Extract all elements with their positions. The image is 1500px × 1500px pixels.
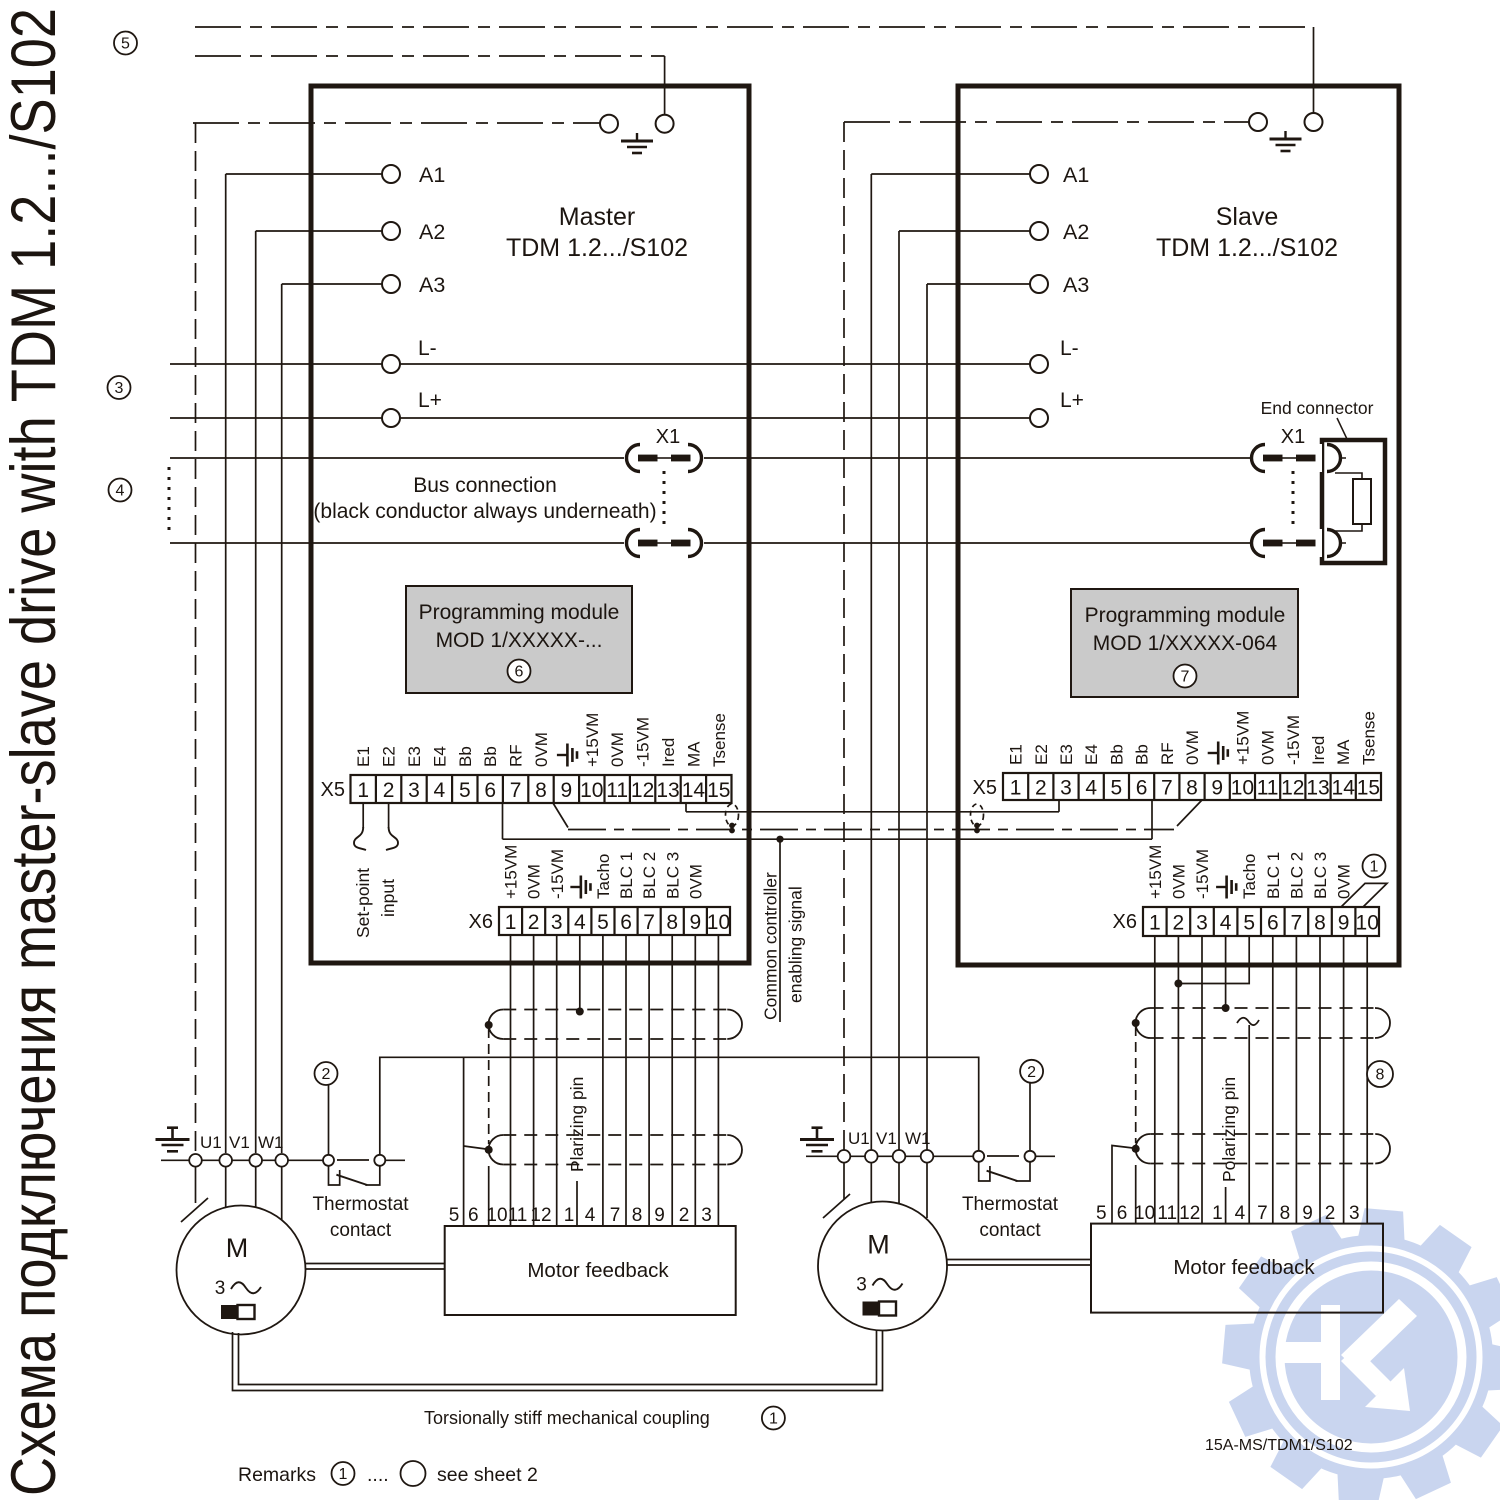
svg-text:A1: A1: [1063, 163, 1089, 187]
svg-text:4: 4: [1235, 1203, 1246, 1224]
svg-text:1: 1: [1149, 912, 1161, 935]
svg-text:8: 8: [535, 779, 547, 802]
svg-text:0VM: 0VM: [608, 732, 627, 767]
svg-text:BLC 1: BLC 1: [617, 852, 636, 899]
svg-text:Plarizing pin: Plarizing pin: [567, 1077, 587, 1172]
svg-text:0VM: 0VM: [532, 732, 551, 767]
svg-text:E2: E2: [380, 746, 399, 767]
svg-text:4: 4: [116, 483, 125, 500]
svg-text:E2: E2: [1032, 744, 1051, 765]
svg-text:M: M: [226, 1233, 249, 1263]
svg-text:3: 3: [115, 380, 124, 397]
svg-text:0VM: 0VM: [525, 864, 544, 899]
svg-text:Motor feedback: Motor feedback: [527, 1259, 669, 1282]
svg-text:A3: A3: [419, 273, 445, 297]
svg-text:14: 14: [682, 779, 706, 802]
svg-text:2: 2: [1325, 1203, 1336, 1224]
svg-text:X6: X6: [469, 911, 493, 933]
svg-text:U1: U1: [200, 1133, 222, 1152]
svg-text:TDM 1.2.../S102: TDM 1.2.../S102: [1156, 234, 1338, 262]
svg-text:Bb: Bb: [1107, 744, 1126, 765]
svg-text:1: 1: [357, 779, 369, 802]
svg-text:11: 11: [1257, 777, 1279, 800]
svg-text:+15VM: +15VM: [583, 713, 602, 767]
svg-text:-15VM: -15VM: [634, 717, 653, 767]
svg-text:V1: V1: [876, 1129, 897, 1148]
svg-text:3: 3: [1349, 1203, 1360, 1224]
svg-text:5: 5: [121, 36, 130, 53]
svg-text:BLC 2: BLC 2: [1287, 852, 1306, 899]
svg-text:13: 13: [1306, 777, 1329, 800]
svg-text:5: 5: [459, 779, 471, 802]
svg-text:-15VM: -15VM: [1193, 849, 1212, 899]
svg-text:6: 6: [515, 664, 524, 681]
svg-text:3: 3: [408, 779, 420, 802]
svg-text:X5: X5: [321, 779, 345, 801]
svg-text:4: 4: [585, 1205, 596, 1226]
svg-text:E4: E4: [1082, 744, 1101, 765]
svg-text:9: 9: [561, 779, 573, 802]
svg-text:M: M: [867, 1230, 890, 1260]
svg-text:End connector: End connector: [1261, 398, 1374, 418]
svg-text:10: 10: [1231, 777, 1254, 800]
svg-text:E4: E4: [430, 746, 449, 767]
svg-text:Tacho: Tacho: [594, 854, 613, 899]
svg-text:10: 10: [486, 1205, 507, 1226]
svg-text:U1: U1: [848, 1129, 870, 1148]
svg-text:7: 7: [1181, 669, 1190, 686]
svg-text:X5: X5: [973, 777, 997, 799]
svg-text:MOD 1/XXXXX-064: MOD 1/XXXXX-064: [1093, 632, 1278, 655]
svg-text:E1: E1: [1007, 744, 1026, 765]
svg-text:4: 4: [1220, 912, 1232, 935]
svg-text:2: 2: [1173, 912, 1185, 935]
svg-text:Programming module: Programming module: [419, 601, 620, 624]
svg-text:Bb: Bb: [1133, 744, 1152, 765]
svg-text:RF: RF: [507, 744, 526, 767]
svg-text:8: 8: [1314, 912, 1326, 935]
svg-text:8: 8: [1280, 1203, 1291, 1224]
svg-text:1: 1: [1212, 1203, 1223, 1224]
svg-text:E3: E3: [1057, 744, 1076, 765]
svg-text:L+: L+: [1060, 389, 1084, 412]
svg-text:MA: MA: [684, 741, 703, 767]
svg-text:0VM: 0VM: [1169, 864, 1188, 899]
svg-text:7: 7: [1161, 777, 1173, 800]
svg-text:5: 5: [597, 911, 609, 934]
svg-text:A2: A2: [419, 220, 445, 244]
svg-text:5: 5: [1096, 1203, 1107, 1224]
svg-text:Thermostat: Thermostat: [962, 1194, 1059, 1215]
svg-text:Common controller: Common controller: [761, 872, 781, 1020]
svg-text:BLC 3: BLC 3: [663, 852, 682, 899]
svg-text:15: 15: [707, 779, 730, 802]
svg-text:9: 9: [1302, 1203, 1313, 1224]
svg-text:Tacho: Tacho: [1240, 854, 1259, 899]
svg-text:12: 12: [1281, 777, 1304, 800]
svg-text:1: 1: [564, 1205, 575, 1226]
svg-text:....: ....: [367, 1464, 389, 1486]
svg-text:Motor feedback: Motor feedback: [1173, 1256, 1315, 1279]
svg-text:9: 9: [1338, 912, 1350, 935]
svg-text:13: 13: [656, 779, 679, 802]
svg-text:see sheet 2: see sheet 2: [437, 1464, 538, 1486]
svg-text:15: 15: [1357, 777, 1380, 800]
svg-text:12: 12: [1179, 1203, 1200, 1224]
svg-text:6: 6: [620, 911, 632, 934]
svg-text:5: 5: [1243, 912, 1255, 935]
svg-text:3: 3: [1060, 777, 1072, 800]
svg-text:0VM: 0VM: [1259, 730, 1278, 765]
svg-text:2: 2: [322, 1066, 331, 1083]
svg-text:Master: Master: [559, 203, 635, 231]
svg-text:V1: V1: [229, 1133, 250, 1152]
svg-text:Bb: Bb: [456, 746, 475, 767]
svg-text:4: 4: [434, 779, 446, 802]
svg-text:enabling signal: enabling signal: [786, 886, 806, 1003]
svg-text:6: 6: [1117, 1203, 1128, 1224]
svg-text:L-: L-: [1060, 337, 1079, 360]
svg-text:5: 5: [1111, 777, 1123, 800]
svg-text:3: 3: [215, 1278, 226, 1299]
svg-text:12: 12: [631, 779, 654, 802]
svg-text:6: 6: [484, 779, 496, 802]
svg-text:-15VM: -15VM: [548, 849, 567, 899]
svg-text:6: 6: [1267, 912, 1279, 935]
svg-text:RF: RF: [1158, 742, 1177, 765]
svg-text:1: 1: [1010, 777, 1022, 800]
svg-text:contact: contact: [979, 1220, 1041, 1241]
svg-text:2: 2: [1027, 1064, 1036, 1081]
svg-text:3: 3: [551, 911, 563, 934]
svg-text:14: 14: [1332, 777, 1356, 800]
svg-text:Ired: Ired: [1309, 736, 1328, 765]
svg-text:6: 6: [468, 1205, 479, 1226]
svg-text:11: 11: [606, 779, 628, 802]
svg-text:0VM: 0VM: [1335, 864, 1354, 899]
svg-text:1: 1: [505, 911, 517, 934]
svg-text:A2: A2: [1063, 220, 1089, 244]
svg-text:7: 7: [510, 779, 522, 802]
svg-text:10: 10: [707, 911, 730, 934]
svg-text:Slave: Slave: [1216, 203, 1279, 231]
svg-text:Bus connection: Bus connection: [413, 474, 557, 497]
svg-text:3: 3: [701, 1205, 712, 1226]
svg-text:8: 8: [1186, 777, 1198, 800]
svg-text:+15VM: +15VM: [1146, 845, 1165, 899]
svg-text:W1: W1: [258, 1133, 284, 1152]
svg-text:1: 1: [339, 1466, 348, 1483]
svg-text:contact: contact: [330, 1220, 392, 1241]
svg-text:1: 1: [769, 1411, 778, 1428]
svg-text:MOD 1/XXXXX-...: MOD 1/XXXXX-...: [436, 629, 603, 652]
svg-text:BLC 3: BLC 3: [1311, 852, 1330, 899]
svg-text:BLC 2: BLC 2: [640, 852, 659, 899]
svg-text:12: 12: [530, 1205, 551, 1226]
svg-text:Bb: Bb: [481, 746, 500, 767]
svg-text:10: 10: [580, 779, 603, 802]
svg-text:Remarks: Remarks: [238, 1464, 316, 1486]
svg-text:7: 7: [643, 911, 655, 934]
svg-text:2: 2: [1035, 777, 1047, 800]
svg-text:TDM 1.2.../S102: TDM 1.2.../S102: [506, 234, 688, 262]
svg-text:+15VM: +15VM: [1233, 711, 1252, 765]
svg-text:+15VM: +15VM: [502, 845, 521, 899]
svg-text:A3: A3: [1063, 273, 1089, 297]
svg-text:Схема подключения master-slave: Схема подключения master-slave drive wit…: [0, 8, 69, 1496]
svg-text:input: input: [378, 879, 398, 917]
svg-text:Tsense: Tsense: [1359, 711, 1378, 765]
svg-text:8: 8: [632, 1205, 643, 1226]
svg-text:9: 9: [654, 1205, 665, 1226]
svg-text:4: 4: [574, 911, 586, 934]
svg-text:L+: L+: [418, 389, 442, 412]
svg-text:5: 5: [449, 1205, 460, 1226]
svg-text:2: 2: [383, 779, 395, 802]
svg-text:E3: E3: [405, 746, 424, 767]
svg-text:0VM: 0VM: [1183, 730, 1202, 765]
svg-text:Torsionally stiff mechanical c: Torsionally stiff mechanical coupling: [424, 1408, 710, 1428]
svg-text:Tsense: Tsense: [710, 713, 729, 767]
svg-text:3: 3: [856, 1275, 867, 1296]
svg-text:L-: L-: [418, 337, 437, 360]
svg-text:Set-point: Set-point: [353, 868, 373, 938]
svg-text:Programming module: Programming module: [1085, 604, 1286, 627]
svg-text:Thermostat: Thermostat: [312, 1194, 409, 1215]
svg-text:7: 7: [1257, 1203, 1268, 1224]
svg-text:8: 8: [1376, 1067, 1385, 1084]
svg-text:8: 8: [666, 911, 678, 934]
svg-text:W1: W1: [905, 1129, 931, 1148]
svg-text:3: 3: [1196, 912, 1208, 935]
svg-text:10: 10: [1356, 912, 1379, 935]
svg-text:6: 6: [1136, 777, 1148, 800]
svg-text:Ired: Ired: [659, 738, 678, 767]
svg-text:MA: MA: [1334, 739, 1353, 765]
svg-text:Polarizing pin: Polarizing pin: [1219, 1077, 1239, 1182]
svg-text:2: 2: [679, 1205, 690, 1226]
svg-text:X6: X6: [1113, 911, 1137, 933]
svg-text:10: 10: [1134, 1203, 1155, 1224]
svg-text:1: 1: [1370, 859, 1379, 876]
svg-text:(black conductor always undern: (black conductor always underneath): [313, 500, 656, 523]
svg-text:15A-MS/TDM1/S102: 15A-MS/TDM1/S102: [1205, 1437, 1353, 1454]
svg-text:BLC 1: BLC 1: [1264, 852, 1283, 899]
svg-text:7: 7: [610, 1205, 621, 1226]
svg-text:-15VM: -15VM: [1284, 715, 1303, 765]
svg-text:A1: A1: [419, 163, 445, 187]
svg-text:11: 11: [508, 1205, 528, 1226]
svg-text:7: 7: [1291, 912, 1303, 935]
svg-text:11: 11: [1157, 1203, 1177, 1224]
svg-text:9: 9: [690, 911, 702, 934]
svg-text:4: 4: [1085, 777, 1097, 800]
svg-text:9: 9: [1211, 777, 1223, 800]
svg-text:0VM: 0VM: [686, 864, 705, 899]
svg-text:E1: E1: [354, 746, 373, 767]
svg-text:2: 2: [528, 911, 540, 934]
